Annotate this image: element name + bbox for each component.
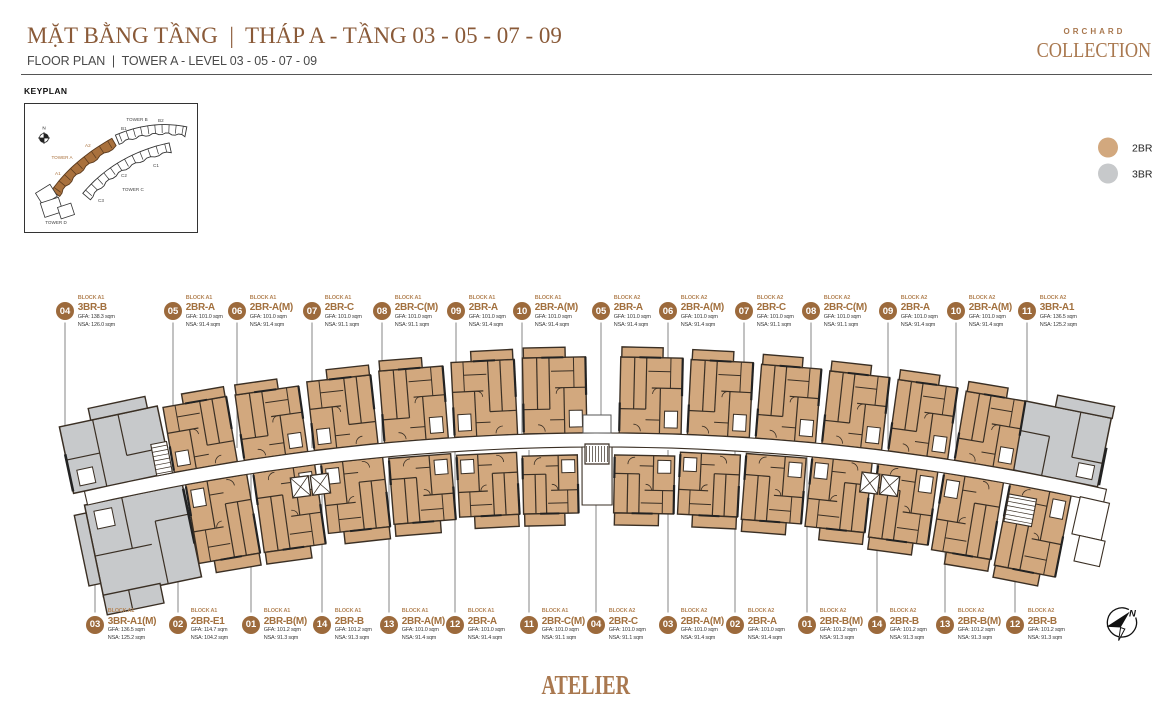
- svg-text:C2: C2: [121, 173, 127, 178]
- svg-text:3BR: 3BR: [1132, 169, 1153, 181]
- svg-text:2BR: 2BR: [1132, 143, 1153, 155]
- svg-text:N: N: [42, 126, 45, 131]
- svg-text:TOWER B: TOWER B: [126, 117, 147, 122]
- svg-text:N: N: [1129, 609, 1137, 620]
- svg-text:A2: A2: [85, 143, 91, 148]
- svg-text:TOWER A: TOWER A: [51, 155, 73, 160]
- svg-text:TOWER C: TOWER C: [122, 187, 144, 192]
- svg-text:B2: B2: [158, 118, 164, 123]
- svg-text:A1: A1: [55, 171, 61, 176]
- svg-text:C1: C1: [153, 163, 159, 168]
- svg-text:TOWER D: TOWER D: [45, 220, 67, 225]
- svg-text:B1: B1: [121, 126, 127, 131]
- svg-text:C3: C3: [98, 198, 104, 203]
